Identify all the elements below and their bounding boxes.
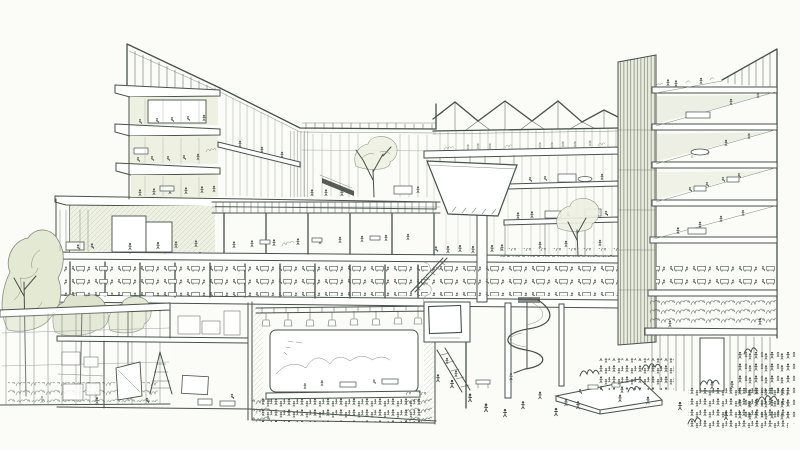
balcony-planters [500, 248, 618, 257]
architectural-sketch: Hand-drawn architectural sectional persp… [0, 0, 800, 450]
garden-pavilion [0, 303, 170, 405]
stage-platform [266, 391, 420, 399]
sketch-page: Hand-drawn architectural sectional persp… [0, 0, 800, 450]
theater-audience [262, 398, 422, 422]
sketch-canvas: Hand-drawn architectural sectional persp… [0, 0, 800, 450]
wing-terrace-planters [650, 300, 776, 326]
wing-cafe [656, 262, 776, 291]
screen-room [424, 302, 470, 342]
first-floor-interior [60, 206, 215, 252]
